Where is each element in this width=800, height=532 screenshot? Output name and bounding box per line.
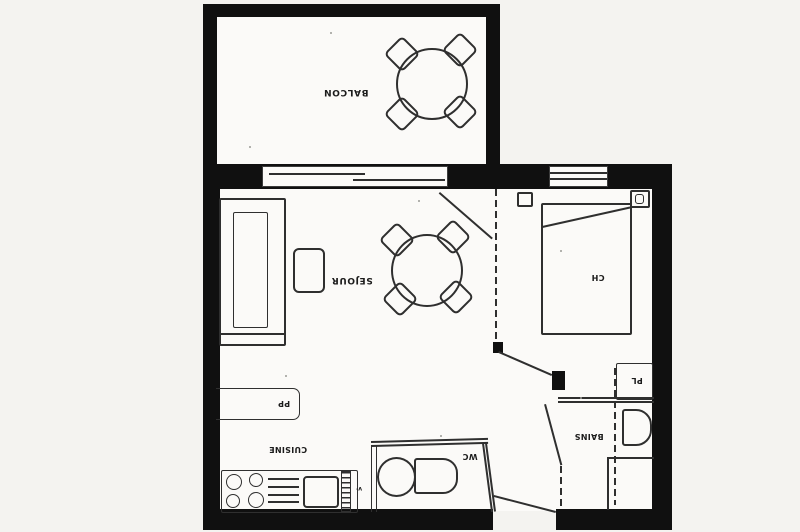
burner-4 xyxy=(248,492,264,508)
wc-label: WC xyxy=(458,450,482,463)
sliding-door-opening xyxy=(262,166,448,187)
scan-speckle xyxy=(580,397,582,399)
bathroom-top-wall xyxy=(558,397,654,403)
shower-left-line xyxy=(607,457,609,510)
counter-mark-label: v· xyxy=(352,484,366,494)
window-pane-line-1 xyxy=(550,172,607,174)
bathroom-inner-dash-wall xyxy=(614,368,616,505)
washbasin xyxy=(622,409,652,446)
burner-2 xyxy=(249,473,263,487)
left-wall xyxy=(203,164,220,530)
bedroom-window xyxy=(549,166,608,187)
bottom-wall-right xyxy=(556,509,672,530)
drainer-line-4 xyxy=(268,501,299,503)
closet-label: PL xyxy=(626,374,648,387)
sofa-cushion xyxy=(233,212,268,328)
scan-speckle xyxy=(440,435,442,437)
scan-speckle xyxy=(285,375,287,377)
balcony-label: BALCON xyxy=(316,84,376,100)
scan-speckle xyxy=(560,250,562,252)
hall-wall-stub-bath xyxy=(552,371,565,390)
floor-plan: BALCON SEJOUR CH PL BAINS xyxy=(0,0,800,532)
sofa-seat-line xyxy=(221,333,284,335)
entry-cupboard-label: PP xyxy=(271,397,297,410)
right-wall xyxy=(652,164,672,530)
drainer-line-2 xyxy=(268,486,299,488)
shower-top-line xyxy=(607,457,654,459)
burner-3 xyxy=(226,494,240,508)
drainer-line-3 xyxy=(268,494,299,496)
sliding-door-leaf-1 xyxy=(269,173,365,175)
window-pane-line-2 xyxy=(550,178,607,180)
counter-end-hatch xyxy=(341,471,351,512)
bedroom-partition-wall xyxy=(495,189,497,339)
side-table xyxy=(293,248,325,293)
entry-dash-wall xyxy=(560,466,562,507)
sliding-door-leaf-2 xyxy=(353,179,445,181)
bathroom-label: BAINS xyxy=(567,430,611,444)
nightstand-right-inner xyxy=(635,194,644,204)
toilet-bowl xyxy=(377,457,416,497)
scan-speckle xyxy=(249,146,251,148)
bedroom-label: CH xyxy=(586,271,610,285)
balcony-left-wall xyxy=(203,4,217,166)
living-room-label: SEJOUR xyxy=(326,272,378,288)
scan-speckle xyxy=(330,32,332,34)
toilet-tank xyxy=(414,458,458,494)
kitchen-sink xyxy=(303,476,339,508)
kitchen-label: CUISINE xyxy=(260,443,316,457)
burner-1 xyxy=(226,474,242,490)
nightstand-left xyxy=(517,192,533,207)
scan-speckle xyxy=(418,200,420,202)
balcony-right-wall xyxy=(486,4,500,166)
drainer-line-1 xyxy=(268,478,299,480)
balcony-top-wall xyxy=(203,4,500,17)
